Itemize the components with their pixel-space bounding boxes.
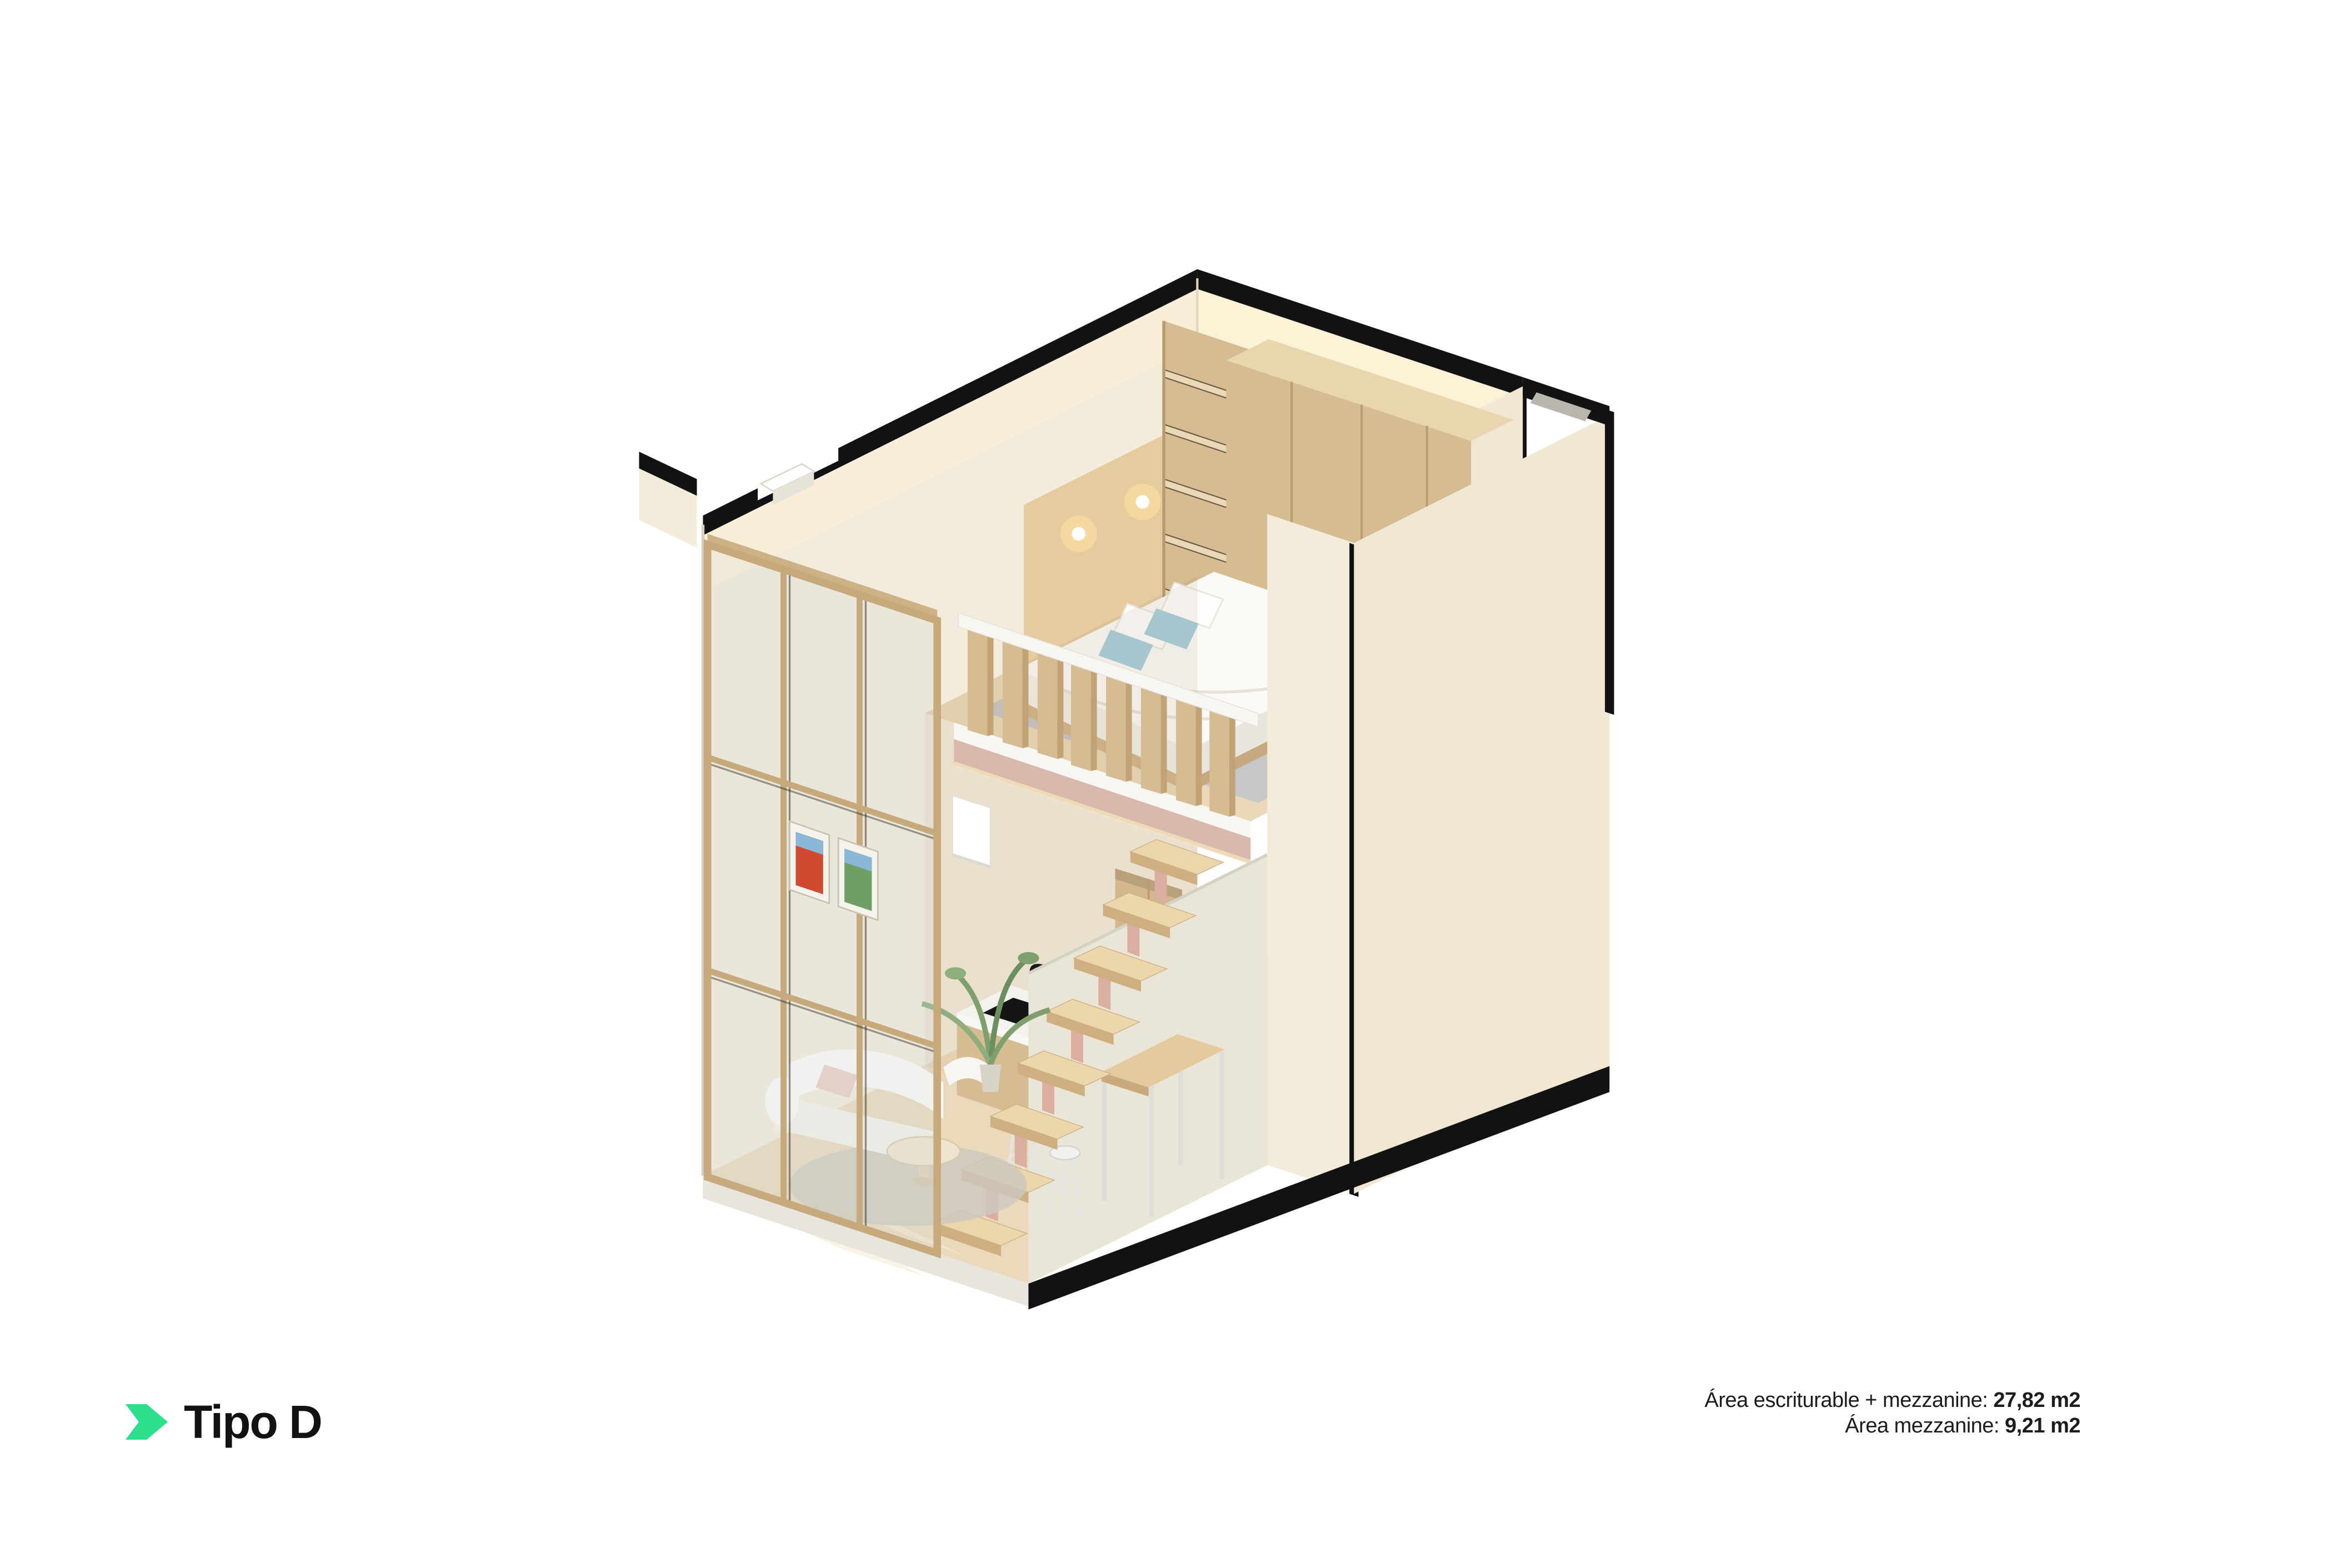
wall-lamp — [1072, 527, 1085, 541]
page: { "logo": { "text": "Tipo D", "chevron_c… — [0, 0, 2352, 1568]
wall-cabinet — [952, 795, 990, 868]
glass-partition — [708, 534, 937, 1253]
isometric-cutaway-illustration — [0, 0, 2352, 1568]
wall-lamp — [1135, 495, 1149, 509]
logo-text: Tipo D — [184, 1399, 322, 1445]
logo: Tipo D — [125, 1399, 322, 1445]
area-line-escriturable: Área escriturable + mezzanine: 27,82 m2 — [1704, 1387, 2080, 1413]
poster — [790, 821, 829, 904]
area-line1-value: 27,82 m2 — [1993, 1389, 2080, 1412]
area-line-mezzanine: Área mezzanine: 9,21 m2 — [1704, 1413, 2080, 1439]
area-line2-label: Área mezzanine: — [1845, 1414, 2005, 1437]
area-line1-label: Área escriturable + mezzanine: — [1704, 1389, 1993, 1412]
floorplan-render — [0, 0, 2352, 1568]
area-line2-value: 9,21 m2 — [2005, 1414, 2080, 1437]
poster — [838, 838, 878, 920]
logo-chevron-icon — [125, 1404, 168, 1440]
area-summary: Área escriturable + mezzanine: 27,82 m2 … — [1704, 1387, 2080, 1439]
